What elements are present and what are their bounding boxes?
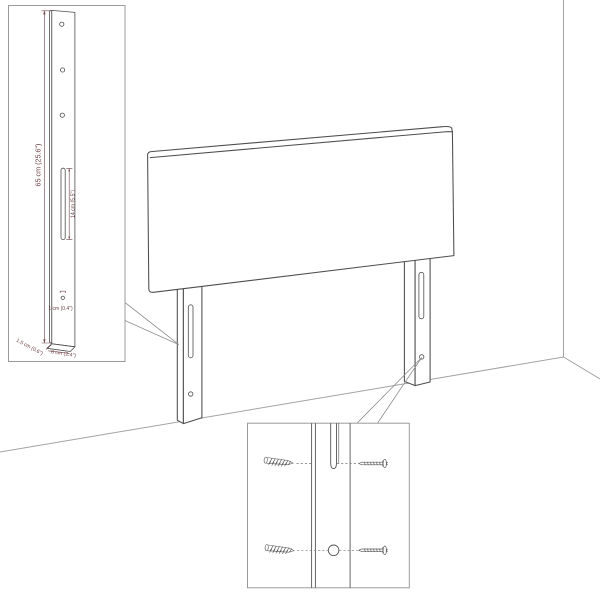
leg-dimension-inset: 65 cm (25.6") 14 cm (5.5") 1 cm (0.4") 1… <box>9 6 126 362</box>
headboard <box>148 127 454 424</box>
right-leg-slot <box>419 272 424 319</box>
leg-top-hole-3 <box>60 113 64 117</box>
left-leg-side-face <box>177 288 183 424</box>
screw-detail-inset-box <box>248 423 410 588</box>
screw-detail-inset <box>248 423 410 588</box>
leg-bottom-hole <box>61 296 64 299</box>
headboard-assembly-diagram: 65 cm (25.6") 14 cm (5.5") 1 cm (0.4") 1… <box>0 0 600 600</box>
right-leg-hole <box>420 355 424 359</box>
slot-dimension-label: 14 cm (5.5") <box>71 190 77 218</box>
height-dimension-label: 65 cm (25.6") <box>34 144 43 187</box>
leg-top-hole-2 <box>61 68 65 72</box>
leg-drawing <box>47 10 75 351</box>
leg-top-hole-1 <box>60 22 64 26</box>
right-leg <box>404 256 430 385</box>
right-leg-side-face <box>404 258 415 385</box>
left-leg-slot <box>188 305 193 358</box>
leg-inset-callout <box>125 303 179 345</box>
leg-slot <box>61 168 65 239</box>
left-leg-hole <box>189 392 193 396</box>
hole-dimension-label: 1 cm (0.4") <box>48 306 73 312</box>
inset-callout-lines <box>125 303 422 424</box>
diagram-canvas: 65 cm (25.6") 14 cm (5.5") 1 cm (0.4") 1… <box>0 0 600 600</box>
